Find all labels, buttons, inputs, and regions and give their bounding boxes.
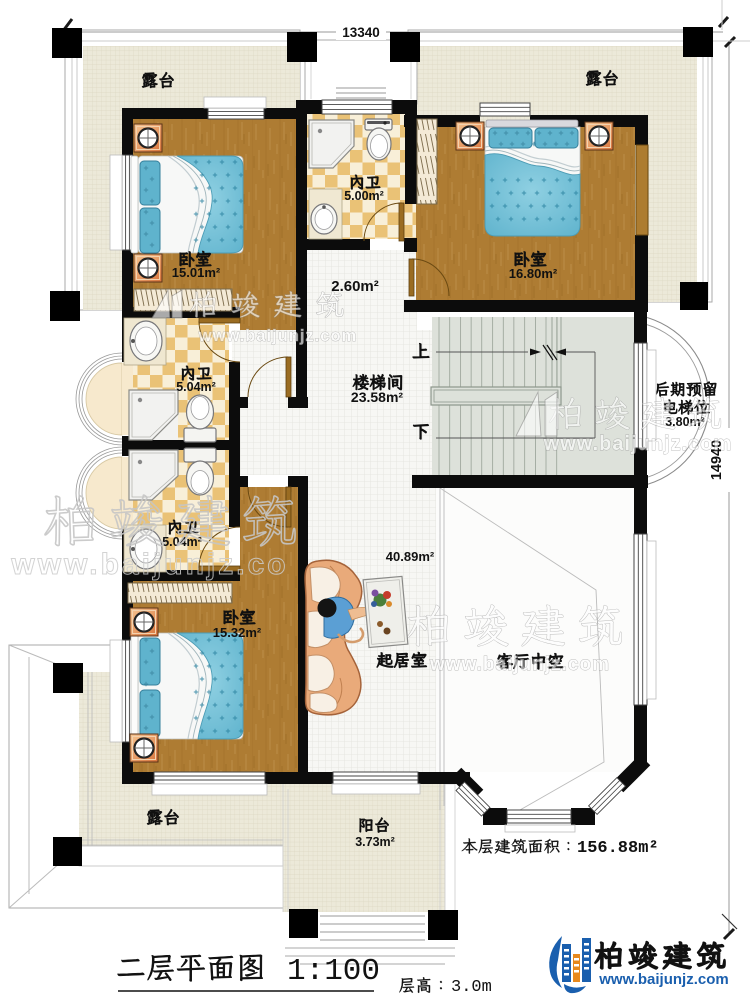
svg-text:15.01m²: 15.01m² <box>172 265 221 280</box>
svg-text:www.baijunjz.com: www.baijunjz.com <box>543 433 733 455</box>
svg-text:156.88m²: 156.88m² <box>577 839 659 858</box>
svg-text:40.89m²: 40.89m² <box>386 549 435 564</box>
svg-text:5.00m²: 5.00m² <box>344 189 384 203</box>
svg-text:www.baijunjz.com: www.baijunjz.com <box>598 971 728 988</box>
svg-text:1:100: 1:100 <box>287 954 380 989</box>
svg-text:www.baijunjz.com: www.baijunjz.com <box>429 654 610 675</box>
svg-text:3.73m²: 3.73m² <box>355 835 395 849</box>
svg-text:13340: 13340 <box>342 25 380 40</box>
svg-text:www.baijunjz.com: www.baijunjz.com <box>198 327 357 345</box>
svg-text:5.04m²: 5.04m² <box>176 380 216 394</box>
svg-text:2.60m²: 2.60m² <box>331 278 379 295</box>
svg-text:www.baijunjz.co: www.baijunjz.co <box>10 548 288 581</box>
svg-text:15.32m²: 15.32m² <box>213 625 262 640</box>
svg-text:3.0m: 3.0m <box>451 978 492 997</box>
svg-text:16.80m²: 16.80m² <box>509 266 558 281</box>
svg-text:23.58m²: 23.58m² <box>351 389 403 405</box>
